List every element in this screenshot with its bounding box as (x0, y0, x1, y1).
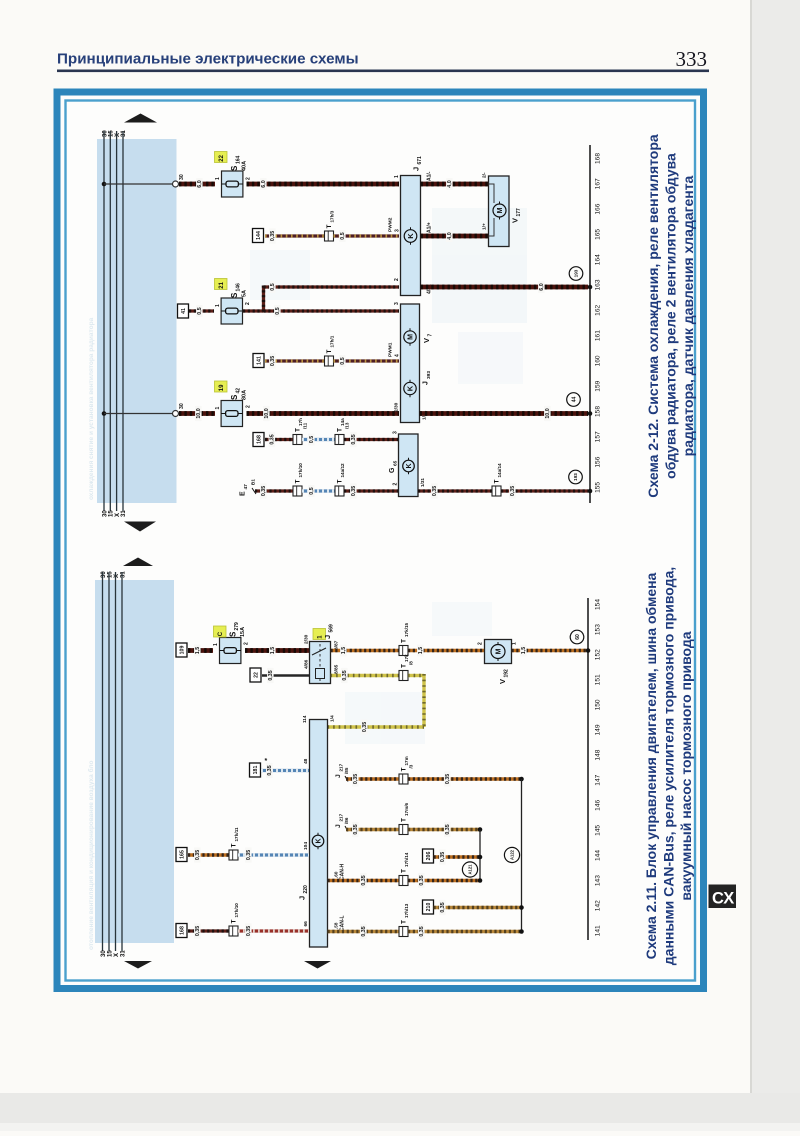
svg-text:B1: B1 (251, 479, 256, 485)
svg-text:S: S (230, 292, 239, 298)
svg-text:220: 220 (303, 885, 309, 894)
svg-text:164: 164 (595, 254, 602, 265)
svg-text:PWM2: PWM2 (388, 217, 394, 232)
svg-text:0,35: 0,35 (246, 850, 252, 860)
svg-text:17h/13: 17h/13 (404, 903, 409, 918)
svg-text:0,35: 0,35 (440, 902, 446, 912)
svg-text:3: 3 (394, 302, 400, 305)
svg-text:30: 30 (179, 403, 185, 409)
svg-text:0,35: 0,35 (267, 765, 273, 775)
svg-text:154: 154 (595, 599, 602, 610)
svg-text:0,35: 0,35 (195, 850, 201, 860)
svg-text:166: 166 (595, 203, 602, 214)
svg-text:1: 1 (215, 304, 221, 307)
svg-text:15: 15 (109, 130, 115, 137)
svg-text:66: 66 (303, 921, 309, 927)
svg-text:0,35: 0,35 (342, 670, 348, 680)
svg-text:данными CAN-Bus, реле усилител: данными CAN-Bus, реле усилителя тормозно… (661, 567, 677, 965)
svg-text:193: 193 (573, 473, 578, 481)
svg-text:17m/6: 17m/6 (404, 803, 409, 816)
svg-text:144: 144 (256, 231, 262, 240)
svg-text:147: 147 (595, 774, 602, 785)
svg-text:156: 156 (595, 456, 602, 467)
svg-text:0,35: 0,35 (361, 875, 367, 885)
svg-text:17h/10: 17h/10 (298, 463, 303, 478)
svg-text:210: 210 (426, 903, 432, 912)
svg-text:10,0: 10,0 (196, 408, 202, 418)
svg-text:671: 671 (417, 156, 423, 165)
svg-text:3: 3 (395, 229, 401, 232)
svg-text:206: 206 (426, 852, 432, 861)
svg-text:10,0: 10,0 (545, 408, 551, 418)
svg-text:333: 333 (676, 47, 708, 71)
svg-text:C: C (218, 631, 224, 636)
svg-text:J: J (335, 774, 342, 778)
svg-text:2: 2 (246, 177, 252, 180)
svg-text:1: 1 (213, 643, 219, 646)
svg-text:168: 168 (180, 926, 186, 935)
svg-text:160: 160 (595, 355, 602, 366)
svg-text:0,35: 0,35 (362, 722, 368, 732)
svg-text:142: 142 (595, 900, 602, 911)
svg-text:2: 2 (244, 642, 250, 645)
svg-text:K: K (316, 838, 323, 843)
svg-text:168: 168 (595, 153, 602, 164)
svg-text:109: 109 (180, 646, 186, 655)
svg-text:X: X (115, 513, 121, 517)
svg-text:V: V (422, 338, 431, 343)
svg-text:17m: 17m (404, 756, 409, 765)
svg-text:2: 2 (246, 405, 252, 408)
svg-text:10,0: 10,0 (264, 408, 270, 418)
svg-text:1: 1 (512, 642, 518, 645)
svg-text:153: 153 (595, 624, 602, 635)
svg-text:6,0: 6,0 (261, 180, 267, 187)
svg-text:149: 149 (595, 724, 602, 735)
svg-text:0,35: 0,35 (195, 926, 201, 936)
svg-text:X: X (115, 133, 121, 137)
svg-text:J: J (412, 167, 421, 171)
svg-text:0,5: 0,5 (340, 357, 346, 364)
svg-text:14a/14: 14a/14 (497, 463, 502, 477)
svg-text:/3: /3 (409, 764, 414, 768)
svg-text:0,35: 0,35 (268, 670, 274, 680)
svg-text:21: 21 (219, 281, 225, 288)
svg-text:17k/15: 17k/15 (404, 623, 409, 637)
svg-text:168: 168 (257, 435, 263, 444)
svg-text:T: T (295, 428, 302, 432)
svg-text:30: 30 (101, 950, 107, 957)
svg-text:M: M (496, 648, 503, 654)
svg-text:65: 65 (393, 460, 399, 466)
svg-text:31: 31 (121, 130, 127, 137)
svg-text:0,35: 0,35 (419, 875, 425, 885)
svg-text:8/85: 8/85 (334, 664, 340, 674)
svg-text:*: * (265, 758, 268, 765)
svg-text:Принципиальные электрические с: Принципиальные электрические схемы (57, 51, 359, 68)
svg-text:2: 2 (478, 642, 484, 645)
svg-text:0,35: 0,35 (353, 824, 359, 834)
svg-text:/13: /13 (345, 422, 350, 429)
svg-text:T: T (326, 225, 333, 229)
svg-text:T: T (231, 920, 238, 924)
svg-text:T: T (401, 818, 408, 822)
svg-text:146: 146 (595, 799, 602, 810)
svg-text:3: 3 (393, 431, 399, 434)
svg-text:1: 1 (215, 407, 221, 410)
svg-text:40A: 40A (242, 161, 248, 171)
svg-text:S: S (230, 394, 239, 400)
svg-text:0,35: 0,35 (510, 486, 516, 496)
svg-text:.58: .58 (334, 922, 339, 929)
svg-text:393: 393 (426, 371, 432, 379)
svg-text:30: 30 (102, 130, 108, 137)
svg-text:0,5: 0,5 (270, 283, 276, 290)
svg-text:17h/3: 17h/3 (330, 210, 335, 222)
svg-text:T: T (326, 350, 333, 354)
svg-text:/11: /11 (303, 422, 308, 429)
svg-text:T: T (494, 480, 501, 484)
svg-text:0,35: 0,35 (261, 486, 267, 496)
svg-text:J: J (335, 824, 342, 828)
svg-text:T: T (401, 664, 408, 668)
svg-text:157: 157 (595, 431, 602, 442)
svg-text:отопление вентиляция и кондици: отопление вентиляция и кондиционирование… (87, 761, 95, 950)
svg-text:A1/-: A1/- (427, 171, 433, 181)
svg-text:193: 193 (574, 269, 579, 277)
svg-text:152: 152 (595, 649, 602, 660)
svg-text:162: 162 (595, 304, 602, 315)
svg-text:V: V (498, 679, 507, 684)
svg-text:144: 144 (595, 850, 602, 861)
svg-text:30: 30 (179, 174, 185, 180)
svg-text:V: V (511, 218, 520, 223)
svg-text:K: K (406, 385, 415, 391)
svg-text:0,35: 0,35 (445, 824, 451, 834)
svg-text:143: 143 (595, 875, 602, 886)
svg-text:4/86: 4/86 (304, 659, 310, 669)
svg-text:155: 155 (595, 482, 602, 493)
svg-text:CAN-L: CAN-L (340, 915, 346, 931)
svg-text:J: J (323, 635, 332, 639)
svg-text:1: 1 (394, 175, 400, 178)
svg-text:CAN-H: CAN-H (340, 864, 346, 880)
svg-text:0,5: 0,5 (309, 487, 315, 494)
svg-text:T: T (231, 844, 238, 848)
svg-text:/86: /86 (344, 817, 349, 824)
svg-text:151: 151 (595, 674, 602, 685)
svg-text:148: 148 (595, 749, 602, 760)
svg-text:2: 2 (393, 483, 399, 486)
svg-text:1: 1 (215, 177, 221, 180)
svg-text:104: 104 (303, 842, 309, 850)
svg-text:1/31: 1/31 (420, 478, 425, 487)
svg-text:15: 15 (107, 950, 113, 957)
svg-text:17h/10: 17h/10 (234, 903, 239, 918)
svg-text:181: 181 (253, 766, 259, 775)
svg-text:4,0: 4,0 (447, 232, 453, 239)
svg-text:0,35: 0,35 (351, 486, 357, 496)
svg-text:60: 60 (575, 634, 581, 640)
svg-text:0,35: 0,35 (432, 486, 438, 496)
svg-text:A121: A121 (468, 864, 473, 875)
svg-text:вакуумный насос тормозного при: вакуумный насос тормозного привода (678, 631, 694, 900)
svg-text:167: 167 (595, 178, 602, 189)
svg-text:17h/14: 17h/14 (404, 852, 409, 867)
svg-text:0,5: 0,5 (309, 436, 315, 443)
svg-text:0,5: 0,5 (275, 307, 281, 314)
svg-text:165: 165 (180, 850, 186, 859)
svg-text:161: 161 (595, 330, 602, 341)
svg-text:0,35: 0,35 (361, 926, 367, 936)
svg-text:44: 44 (571, 397, 577, 403)
svg-text:0,35: 0,35 (270, 231, 276, 241)
svg-text:1,5: 1,5 (521, 647, 527, 654)
svg-text:30: 30 (102, 510, 108, 517)
svg-text:145: 145 (595, 825, 602, 836)
svg-text:192: 192 (504, 669, 510, 678)
svg-text:/85: /85 (344, 767, 349, 774)
svg-text:22: 22 (254, 672, 260, 678)
svg-text:/8: /8 (409, 661, 414, 665)
svg-text:T: T (401, 869, 408, 873)
svg-text:Схема 2.11. Блок управления дв: Схема 2.11. Блок управления двигателем, … (643, 572, 659, 959)
svg-text:S: S (230, 165, 239, 171)
svg-text:158: 158 (595, 406, 602, 417)
svg-text:0,5: 0,5 (340, 232, 346, 239)
svg-text:177: 177 (516, 208, 522, 217)
svg-text:0,5: 0,5 (197, 307, 203, 314)
svg-text:6,0: 6,0 (197, 180, 203, 187)
svg-text:X: X (114, 574, 120, 578)
svg-text:47: 47 (243, 484, 249, 490)
svg-text:1,5: 1,5 (341, 647, 347, 654)
svg-text:569: 569 (329, 624, 335, 633)
svg-text:A122: A122 (510, 849, 515, 860)
svg-text:4: 4 (395, 354, 401, 357)
svg-text:0,35: 0,35 (270, 434, 276, 444)
svg-text:159: 159 (595, 380, 602, 391)
svg-text:15: 15 (109, 510, 115, 517)
svg-text:T: T (401, 639, 408, 643)
svg-text:0,35: 0,35 (440, 852, 446, 862)
svg-text:4,0: 4,0 (447, 180, 453, 187)
svg-text:2: 2 (394, 278, 400, 281)
svg-text:0,35: 0,35 (246, 926, 252, 936)
svg-text:48: 48 (303, 758, 309, 764)
svg-text:радиатора, датчик давления хла: радиатора, датчик давления хладагента (680, 175, 696, 456)
svg-text:80A: 80A (242, 390, 248, 400)
svg-text:30: 30 (101, 571, 107, 578)
svg-text:163: 163 (595, 279, 602, 290)
svg-text:15: 15 (107, 571, 113, 578)
svg-text:M: M (408, 334, 415, 340)
svg-text:J: J (298, 896, 307, 900)
svg-text:1,5: 1,5 (270, 647, 276, 654)
svg-text:T: T (295, 480, 302, 484)
svg-text:охлаждения снятие и установка: охлаждения снятие и установка вентилятор… (88, 317, 95, 500)
svg-text:114: 114 (302, 715, 307, 723)
svg-text:2/30: 2/30 (394, 402, 400, 412)
svg-text:1,5: 1,5 (418, 647, 424, 654)
svg-text:41: 41 (181, 308, 187, 314)
svg-text:T: T (337, 480, 344, 484)
svg-text:K: K (406, 233, 415, 239)
svg-text:14a/12: 14a/12 (340, 463, 345, 477)
svg-text:0,35: 0,35 (351, 434, 357, 444)
svg-text:1/+: 1/+ (482, 223, 488, 230)
svg-text:PWM1: PWM1 (388, 342, 394, 357)
svg-text:2: 2 (245, 302, 251, 305)
svg-text:2/30: 2/30 (304, 634, 310, 644)
svg-text:1/4: 1/4 (330, 715, 336, 722)
svg-text:17h/1: 17h/1 (330, 335, 335, 347)
svg-text:6,0: 6,0 (539, 283, 545, 290)
svg-text:31: 31 (121, 510, 127, 517)
svg-text:217: 217 (339, 763, 344, 771)
svg-text:17h/11: 17h/11 (234, 827, 239, 841)
svg-text:31: 31 (120, 571, 126, 578)
svg-text:0,35: 0,35 (270, 356, 276, 366)
svg-text:1,5: 1,5 (195, 647, 201, 654)
svg-text:2/-: 2/- (482, 172, 488, 178)
svg-text:0,35: 0,35 (353, 774, 359, 784)
svg-text:J: J (423, 381, 430, 385)
svg-text:T: T (337, 428, 344, 432)
svg-text:Схема 2-12. Система охлаждения: Схема 2-12. Система охлаждения, реле вен… (645, 134, 661, 498)
svg-text:T: T (401, 768, 408, 772)
svg-text:8/87: 8/87 (334, 640, 340, 650)
svg-text:141: 141 (595, 925, 602, 936)
svg-text:17k: 17k (404, 654, 409, 662)
svg-text:19: 19 (219, 384, 225, 391)
svg-text:217: 217 (339, 813, 344, 821)
svg-text:G: G (389, 467, 396, 473)
svg-text:X: X (114, 953, 120, 957)
svg-text:E: E (240, 491, 247, 496)
svg-text:A1/+: A1/+ (427, 222, 433, 233)
svg-text:15A: 15A (240, 627, 246, 637)
svg-text:СХ: СХ (712, 890, 734, 908)
svg-text:165: 165 (595, 229, 602, 240)
svg-text:T: T (401, 920, 408, 924)
svg-text:7: 7 (428, 334, 434, 337)
svg-text:M: M (497, 207, 504, 213)
svg-text:0,35: 0,35 (419, 926, 425, 936)
svg-text:.60: .60 (334, 871, 339, 878)
svg-text:0,35: 0,35 (445, 774, 451, 784)
svg-text:5A: 5A (242, 290, 248, 297)
svg-text:S: S (229, 631, 238, 637)
svg-text:141: 141 (257, 356, 263, 365)
svg-text:31: 31 (120, 950, 126, 957)
svg-text:обдува радиатора, реле 2 венти: обдува радиатора, реле 2 вентилятора обд… (663, 153, 679, 479)
svg-text:K: K (406, 463, 413, 468)
svg-text:22: 22 (219, 154, 225, 161)
svg-text:150: 150 (595, 699, 602, 710)
